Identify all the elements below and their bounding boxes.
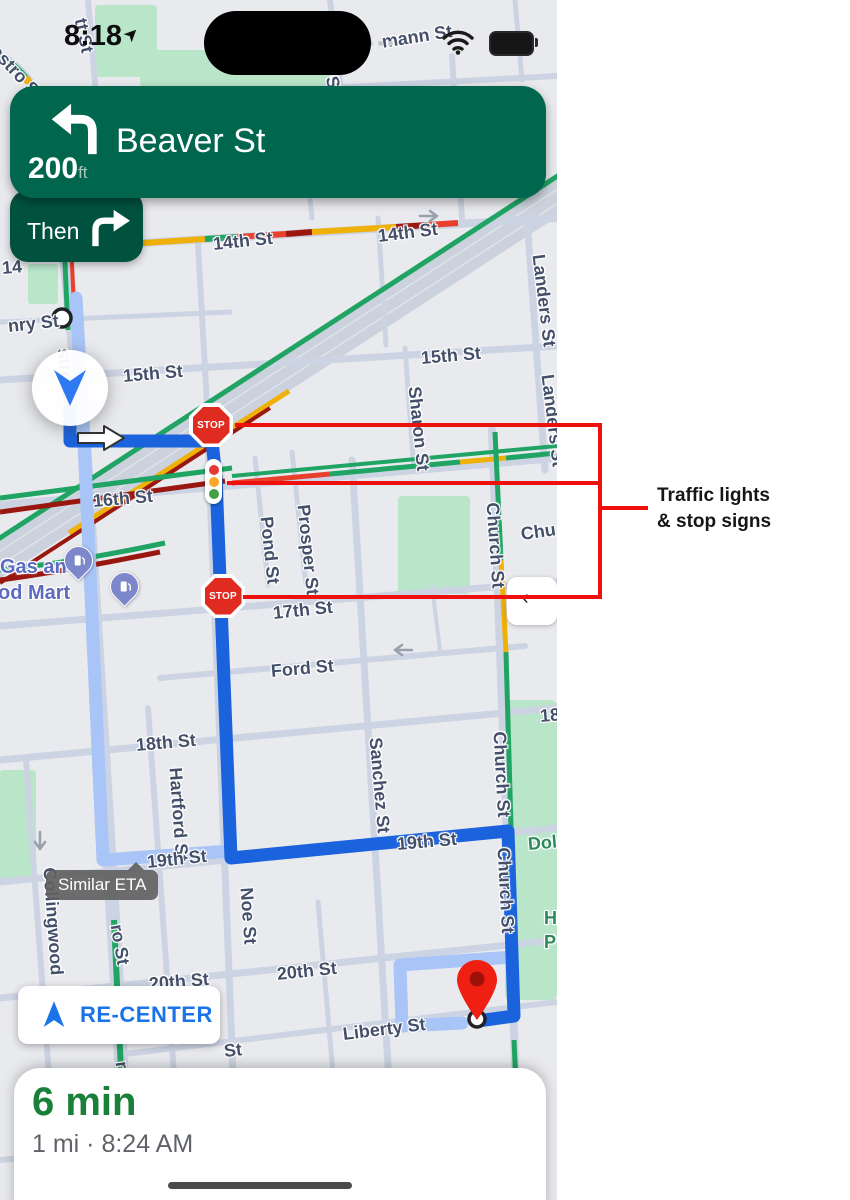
annotation-bracket — [598, 423, 602, 599]
wifi-icon — [441, 29, 475, 55]
street-label: od Mart — [0, 582, 70, 605]
left-turn-icon — [44, 98, 102, 156]
traffic-light-icon — [205, 459, 222, 504]
trip-summary-sheet[interactable]: 6 min 1 mi · 8:24 AM — [14, 1068, 546, 1200]
status-time: 8:18 — [64, 20, 122, 53]
street-label: P — [544, 932, 556, 953]
then-label: Then — [27, 218, 79, 245]
street-label: Church St — [489, 731, 514, 818]
trip-details: 1 mi · 8:24 AM — [32, 1130, 193, 1159]
street-label: 18 — [539, 704, 557, 727]
maneuver-street: Beaver St — [116, 122, 265, 161]
home-indicator[interactable] — [168, 1182, 352, 1189]
navigation-puck-icon — [50, 362, 90, 410]
annotation-line — [235, 423, 602, 427]
maneuver-distance: 200ft — [28, 152, 88, 186]
annotation-line — [227, 481, 602, 485]
street-label: St — [223, 1039, 243, 1062]
similar-eta-tooltip[interactable]: Similar ETA — [46, 870, 158, 900]
stop-sign: STOP — [189, 403, 233, 447]
dynamic-island — [204, 11, 371, 75]
battery-icon — [489, 31, 534, 56]
collapse-panel-button[interactable]: ‹ — [507, 577, 557, 625]
recenter-button[interactable]: RE-CENTER — [18, 986, 220, 1044]
current-location-puck — [32, 350, 108, 426]
navigation-banner[interactable]: 200ft Beaver St — [10, 86, 546, 198]
annotation-line — [243, 595, 602, 599]
trip-duration: 6 min — [32, 1080, 136, 1125]
screenshot-root: STOP STOP ‹ Similar ETA RE-CENTER — [0, 0, 850, 1200]
recenter-arrow-icon — [42, 1001, 66, 1029]
annotation-connector — [602, 506, 648, 510]
street-label: Dol — [527, 832, 557, 855]
annotation-label: Traffic lights & stop signs — [657, 483, 771, 535]
similar-eta-label: Similar ETA — [58, 875, 146, 894]
then-maneuver-chip[interactable]: Then — [10, 190, 143, 262]
recenter-label: RE-CENTER — [80, 1002, 213, 1028]
street-label: Noe St — [236, 887, 261, 945]
street-label: H — [544, 908, 557, 929]
map-canvas[interactable]: STOP STOP ‹ Similar ETA RE-CENTER — [0, 0, 557, 1200]
right-turn-icon — [88, 208, 132, 248]
label-dots — [368, 41, 393, 46]
street-label: Church St — [493, 847, 518, 934]
